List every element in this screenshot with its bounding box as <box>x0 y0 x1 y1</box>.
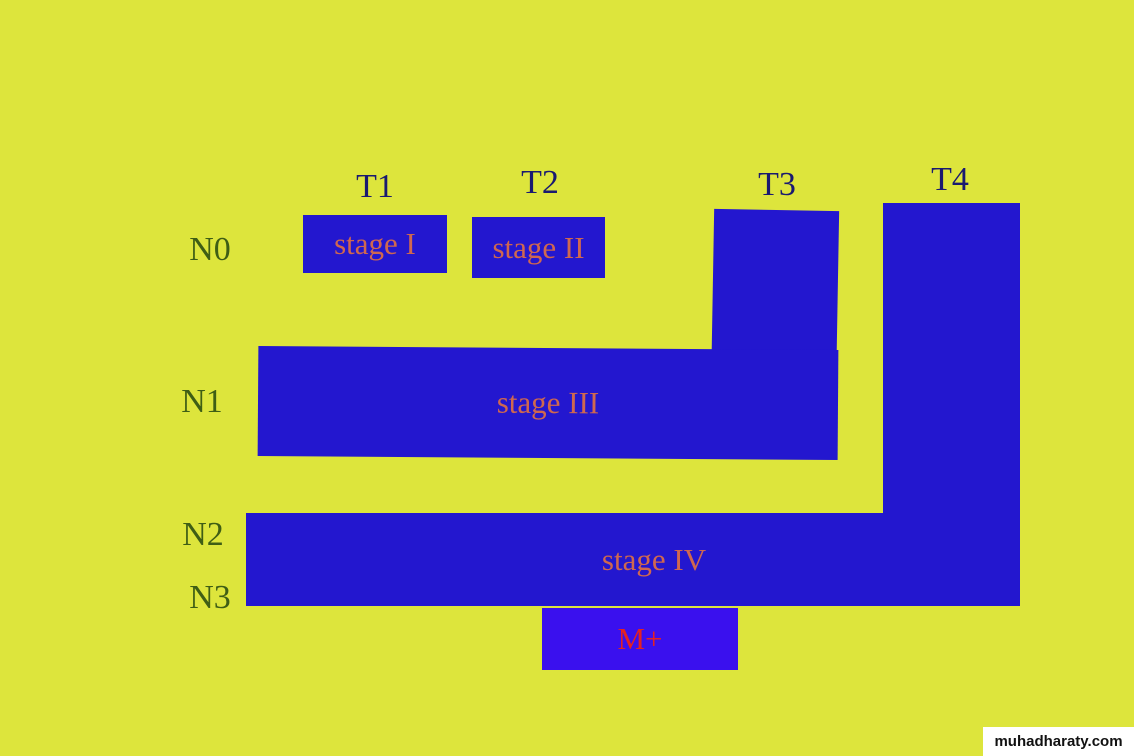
watermark: muhadharaty.com <box>983 727 1134 756</box>
tnm-staging-diagram: T1 T2 T3 T4 N0 N1 N2 N3 stage I stage II… <box>0 0 1134 756</box>
col-label-t1: T1 <box>335 168 415 206</box>
col-label-t4: T4 <box>910 161 990 199</box>
stage-i-box: stage I <box>303 215 447 273</box>
row-label-n2: N2 <box>163 516 243 554</box>
row-label-n1: N1 <box>162 383 242 421</box>
stage-i-label: stage I <box>334 226 416 262</box>
stage-iv-bar: stage IV <box>246 513 1020 606</box>
stage-ii-label: stage II <box>492 230 584 266</box>
m-plus-box: M+ <box>542 608 738 670</box>
stage-iii-bar: stage III <box>258 346 839 460</box>
row-label-n0: N0 <box>170 231 250 269</box>
col-label-t2: T2 <box>500 164 580 202</box>
col-label-t3: T3 <box>737 166 817 204</box>
stage-ii-box: stage II <box>472 217 605 278</box>
m-plus-label: M+ <box>617 621 662 657</box>
stage-iv-label: stage IV <box>602 542 706 578</box>
row-label-n3: N3 <box>170 579 250 617</box>
stage-iii-label: stage III <box>497 385 600 422</box>
